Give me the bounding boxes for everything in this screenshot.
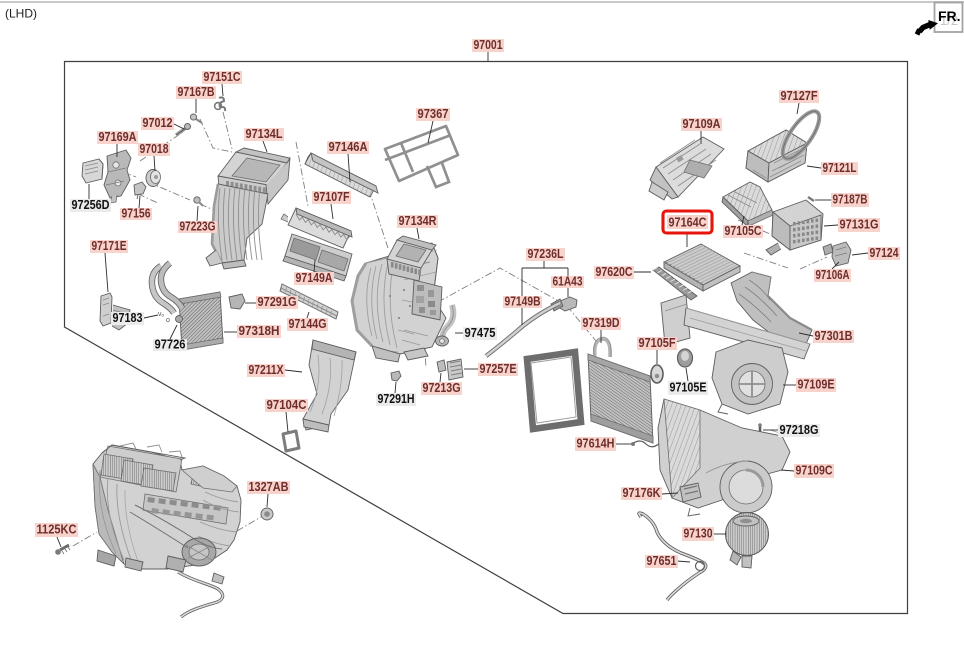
svg-text:97726: 97726 bbox=[155, 337, 186, 352]
svg-text:97291G: 97291G bbox=[258, 294, 297, 309]
svg-text:97151C: 97151C bbox=[204, 69, 241, 84]
svg-text:61A43: 61A43 bbox=[553, 274, 583, 289]
svg-text:97176K: 97176K bbox=[623, 485, 662, 500]
svg-text:97651: 97651 bbox=[647, 553, 677, 568]
svg-text:97149B: 97149B bbox=[505, 294, 541, 309]
svg-text:97124: 97124 bbox=[870, 245, 900, 260]
svg-text:97012: 97012 bbox=[143, 115, 173, 130]
svg-text:97105F: 97105F bbox=[639, 335, 676, 350]
svg-text:97183: 97183 bbox=[113, 310, 143, 325]
svg-text:97614H: 97614H bbox=[577, 436, 615, 451]
svg-text:97149A: 97149A bbox=[296, 270, 333, 285]
svg-text:97301B: 97301B bbox=[815, 328, 853, 343]
svg-text:FR.: FR. bbox=[938, 8, 961, 24]
svg-text:97134R: 97134R bbox=[399, 213, 438, 228]
svg-text:97131G: 97131G bbox=[840, 217, 879, 232]
svg-text:ο: ο bbox=[166, 317, 170, 324]
svg-text:97319D: 97319D bbox=[583, 315, 620, 330]
svg-text:97291H: 97291H bbox=[378, 391, 415, 406]
svg-text:97109E: 97109E bbox=[798, 377, 835, 392]
svg-text:97171E: 97171E bbox=[92, 238, 127, 253]
svg-text:97130: 97130 bbox=[684, 526, 713, 541]
svg-text:97256D: 97256D bbox=[72, 197, 110, 212]
svg-text:97475: 97475 bbox=[465, 325, 496, 340]
svg-text:97164C: 97164C bbox=[669, 214, 708, 229]
svg-text:97121L: 97121L bbox=[823, 160, 857, 175]
svg-text:97318H: 97318H bbox=[239, 323, 280, 338]
svg-text:97167B: 97167B bbox=[178, 84, 215, 99]
svg-text:97104C: 97104C bbox=[267, 397, 308, 412]
svg-text:97105C: 97105C bbox=[725, 223, 762, 238]
svg-text:(LHD): (LHD) bbox=[5, 7, 37, 21]
svg-text:97367: 97367 bbox=[418, 106, 449, 121]
svg-text:1125KC: 1125KC bbox=[37, 522, 78, 537]
svg-text:97144G: 97144G bbox=[289, 316, 327, 331]
svg-text:97169A: 97169A bbox=[99, 129, 138, 144]
svg-text:97187B: 97187B bbox=[833, 192, 868, 207]
svg-text:1327AB: 1327AB bbox=[249, 479, 289, 494]
svg-text:νₒ: νₒ bbox=[158, 311, 165, 318]
svg-text:97211X: 97211X bbox=[249, 362, 284, 377]
svg-text:97146A: 97146A bbox=[329, 139, 369, 154]
svg-text:97236L: 97236L bbox=[528, 246, 564, 261]
svg-text:97257E: 97257E bbox=[480, 361, 517, 376]
svg-text:97106A: 97106A bbox=[816, 267, 850, 282]
svg-text:97213G: 97213G bbox=[423, 380, 461, 395]
svg-text:97109C: 97109C bbox=[796, 463, 833, 478]
svg-text:97134L: 97134L bbox=[246, 126, 283, 141]
svg-text:97001: 97001 bbox=[474, 37, 503, 52]
svg-text:97156: 97156 bbox=[122, 206, 151, 221]
svg-text:97105E: 97105E bbox=[670, 380, 707, 395]
svg-text:97620C: 97620C bbox=[596, 264, 633, 279]
svg-text:97109A: 97109A bbox=[683, 116, 722, 131]
svg-text:97223G: 97223G bbox=[180, 219, 216, 234]
svg-text:97018: 97018 bbox=[140, 141, 169, 156]
svg-text:97127F: 97127F bbox=[781, 88, 818, 103]
svg-text:97218G: 97218G bbox=[780, 422, 819, 437]
svg-text:97107F: 97107F bbox=[314, 189, 350, 204]
